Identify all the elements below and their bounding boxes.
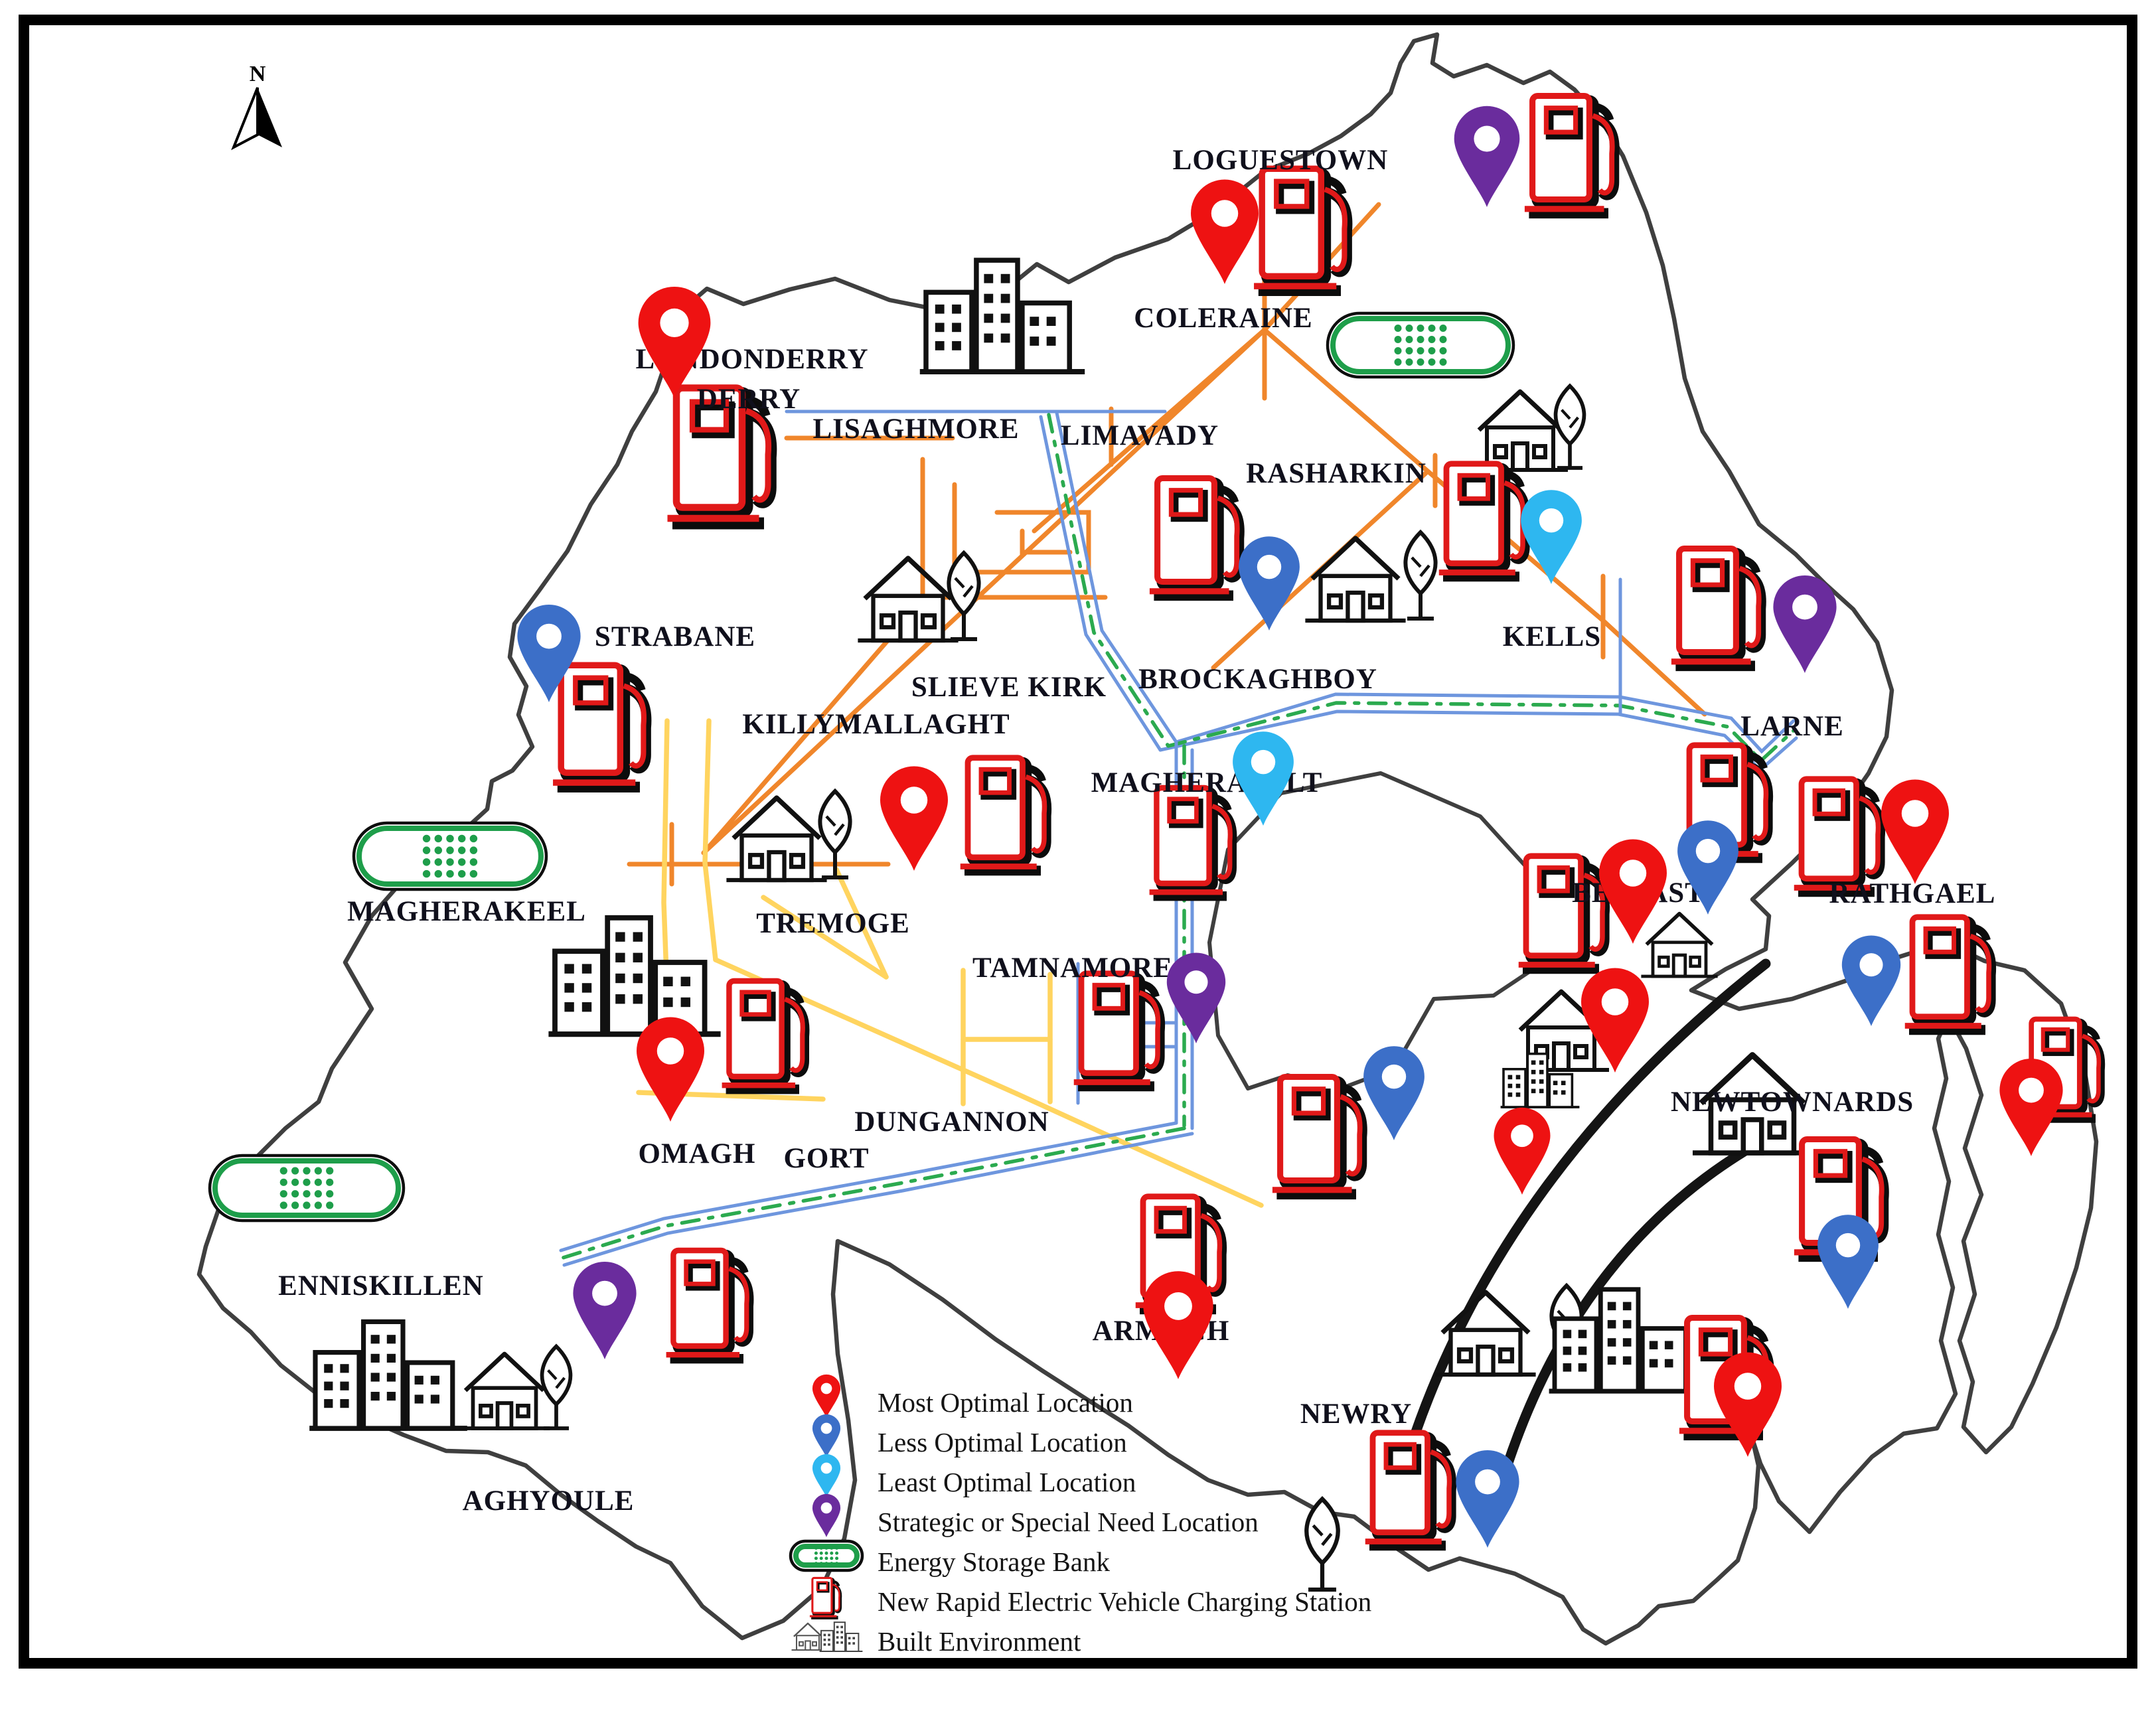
energy-storage-bank-icon xyxy=(1328,313,1513,377)
legend-row: Least Optimal Location xyxy=(812,1454,1136,1497)
map-pin-red xyxy=(1494,1108,1551,1195)
ev-charging-station-icon xyxy=(1272,1077,1363,1195)
legend-row: Most Optimal Location xyxy=(812,1375,1133,1418)
legend-pin-lightblue-icon xyxy=(812,1454,840,1497)
ev-charging-station-icon xyxy=(722,981,805,1089)
map-pin-purple xyxy=(1454,106,1520,207)
ev-charging-station-icon xyxy=(1905,917,1992,1030)
legend-pin-purple-icon xyxy=(812,1494,840,1537)
north-arrow-left-half xyxy=(234,88,258,147)
map-pin-red xyxy=(1881,780,1949,885)
energy-storage-bank-icon xyxy=(354,823,546,889)
place-label-coleraine: COLERAINE xyxy=(1134,303,1312,334)
legend-row: Built Environment xyxy=(792,1622,1081,1657)
place-label-omagh: OMAGH xyxy=(639,1138,756,1169)
northern-ireland-ev-map: N LOGUESTOWNCOLERAINELONDONDERRYDERRYLIS… xyxy=(0,0,2156,1725)
place-label-limavady: LIMAVADY xyxy=(1061,420,1219,451)
city-buildings-icon xyxy=(548,918,720,1034)
place-label-enniskillen: ENNISKILLEN xyxy=(278,1270,484,1302)
legend-row: New Rapid Electric Vehicle Charging Stat… xyxy=(810,1578,1371,1617)
place-label-tremoge: TREMOGE xyxy=(756,908,910,939)
ev-charging-station-icon xyxy=(553,665,647,787)
energy-storage-bank-icon xyxy=(210,1156,404,1221)
map-pin-red xyxy=(637,1017,704,1122)
house-icon xyxy=(1305,538,1405,621)
tree-icon xyxy=(1306,1499,1338,1590)
compass-north-label: N xyxy=(250,62,266,86)
map-pin-red xyxy=(1999,1059,2062,1156)
map-pin-purple xyxy=(573,1262,636,1359)
place-label-newtownards: NEWTOWNARDS xyxy=(1671,1087,1914,1118)
legend-item-label: Energy Storage Bank xyxy=(878,1546,1110,1577)
map-pin-red xyxy=(880,767,948,871)
place-label-magherakeel: MAGHERAKEEL xyxy=(347,896,586,927)
legend-charging-station-icon xyxy=(810,1578,840,1617)
map-pin-blue xyxy=(1842,936,1900,1027)
legend-built-environment-icon xyxy=(792,1622,863,1651)
ev-charging-station-icon xyxy=(961,758,1047,871)
map-page: N LOGUESTOWNCOLERAINELONDONDERRYDERRYLIS… xyxy=(0,0,2156,1725)
legend-energy-storage-bank-icon xyxy=(791,1541,862,1570)
city-buildings-icon xyxy=(820,1622,863,1651)
ev-charging-station-icon xyxy=(1150,479,1240,596)
city-buildings-icon xyxy=(309,1321,467,1428)
place-label-newry: NEWRY xyxy=(1300,1398,1412,1430)
place-label-lisaghmore: LISAGHMORE xyxy=(812,413,1019,445)
place-label-rasharkin: RASHARKIN xyxy=(1246,458,1426,489)
map-pin-red xyxy=(1191,180,1259,285)
house-icon xyxy=(792,1623,824,1650)
tree-icon xyxy=(542,1347,571,1429)
house-icon xyxy=(459,1354,550,1428)
house-icon xyxy=(1472,392,1568,470)
ev-charging-station-icon xyxy=(1365,1433,1452,1546)
map-pin-lightblue xyxy=(1521,490,1582,584)
north-arrow: N xyxy=(234,62,282,147)
legend-row: Energy Storage Bank xyxy=(791,1541,1110,1577)
place-label-gort: GORT xyxy=(783,1143,869,1174)
tree-icon xyxy=(1556,386,1584,469)
legend-item-label: Most Optimal Location xyxy=(878,1387,1133,1418)
legend-item-label: New Rapid Electric Vehicle Charging Stat… xyxy=(878,1586,1371,1617)
tree-icon xyxy=(949,553,978,639)
place-label-aghyoule: AGHYOULE xyxy=(463,1485,635,1517)
legend-pin-red-icon xyxy=(812,1375,840,1418)
ev-charging-station-icon xyxy=(1671,549,1762,666)
ev-charging-station-icon xyxy=(1519,856,1606,969)
legend-item-label: Least Optimal Location xyxy=(878,1467,1136,1497)
place-label-slieve-kirk: SLIEVE KIRK xyxy=(911,672,1107,703)
place-label-rathgael: RATHGAEL xyxy=(1829,878,1996,909)
legend-pin-blue-icon xyxy=(812,1414,840,1458)
place-label-loguestown: LOGUESTOWN xyxy=(1173,145,1389,176)
map-pin-red xyxy=(1143,1271,1213,1379)
place-label-killymallaght: KILLYMALLAGHT xyxy=(742,709,1010,740)
legend-row: Strategic or Special Need Location xyxy=(812,1494,1259,1537)
tree-icon xyxy=(1405,532,1435,619)
place-label-strabane: STRABANE xyxy=(595,621,755,652)
legend-item-label: Strategic or Special Need Location xyxy=(878,1507,1259,1537)
ev-charging-station-icon xyxy=(1254,169,1347,291)
place-label-kells: KELLS xyxy=(1503,621,1601,652)
place-label-derry: DERRY xyxy=(697,384,801,415)
legend-row: Less Optimal Location xyxy=(812,1414,1127,1458)
house-icon xyxy=(1435,1292,1535,1375)
ev-charging-station-icon xyxy=(666,1250,749,1359)
map-pin-blue xyxy=(1363,1046,1424,1140)
map-pin-blue xyxy=(1456,1450,1519,1548)
place-label-dungannon: DUNGANNON xyxy=(854,1106,1049,1138)
north-arrow-right-half xyxy=(258,88,282,147)
ev-charging-station-icon xyxy=(1074,974,1161,1087)
place-label-larne: LARNE xyxy=(1740,711,1844,742)
map-pin-red xyxy=(639,287,711,398)
ev-charging-station-icon xyxy=(1439,464,1526,577)
ev-charging-station-icon xyxy=(1525,96,1615,214)
ev-charging-station-icon xyxy=(1150,788,1233,896)
legend-item-label: Built Environment xyxy=(878,1626,1081,1657)
map-pin-blue xyxy=(1239,536,1300,631)
ev-charging-station-icon xyxy=(1794,779,1881,892)
legend: Most Optimal LocationLess Optimal Locati… xyxy=(791,1375,1371,1657)
place-label-brockaghboy: BROCKAGHBOY xyxy=(1138,664,1377,695)
map-pin-purple xyxy=(1773,575,1836,673)
legend-item-label: Less Optimal Location xyxy=(878,1427,1127,1458)
map-pin-blue xyxy=(1817,1215,1879,1309)
house-icon xyxy=(858,558,958,640)
map-pin-red xyxy=(1714,1353,1782,1458)
place-label-tamnamore: TAMNAMORE xyxy=(972,952,1173,984)
house-icon xyxy=(1641,914,1717,976)
